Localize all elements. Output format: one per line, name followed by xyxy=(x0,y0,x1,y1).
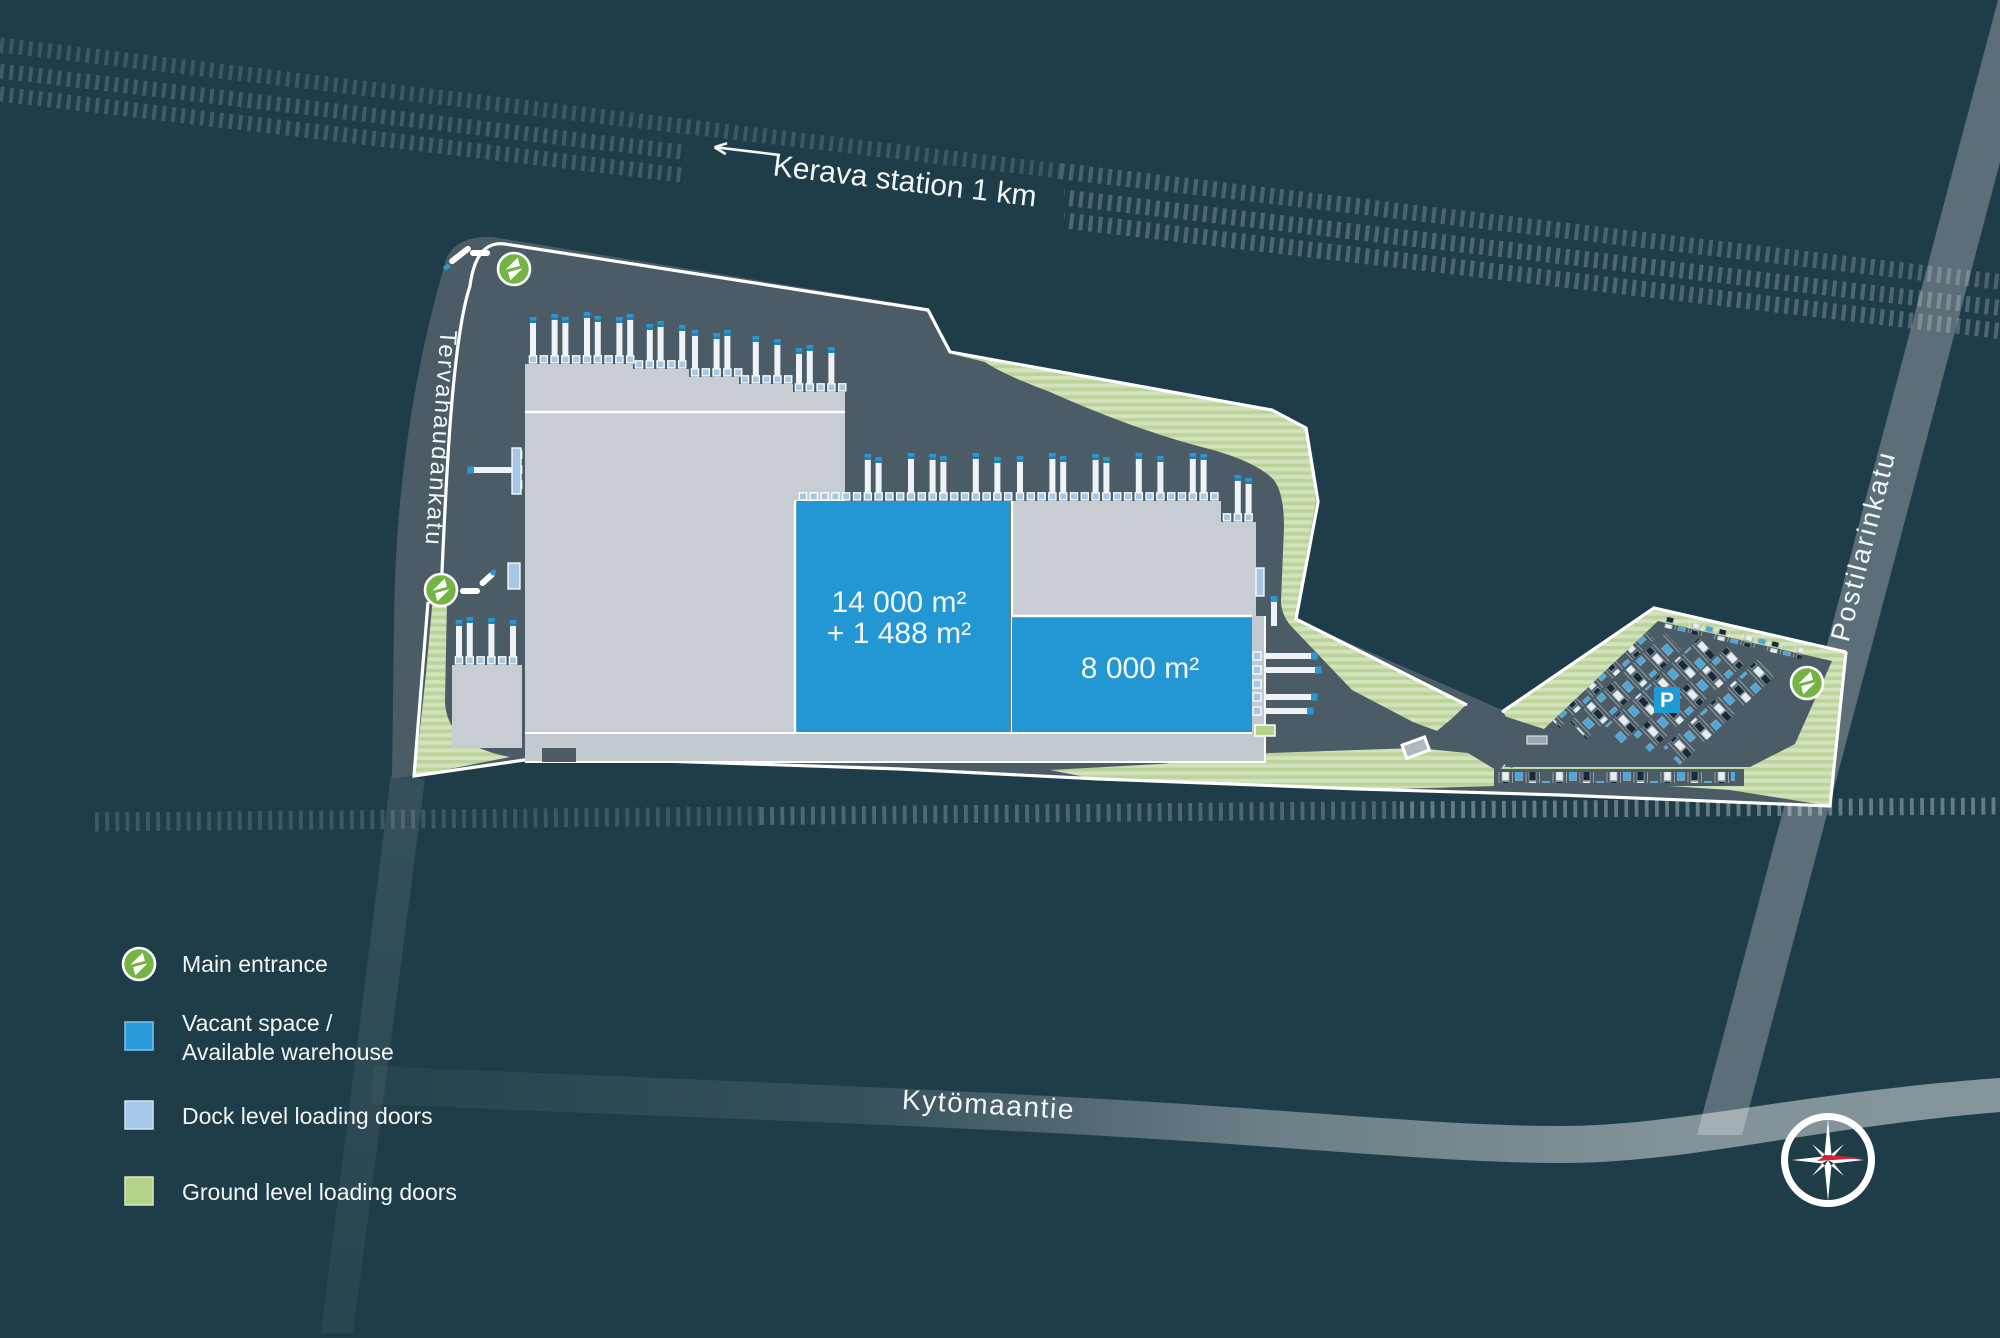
svg-text:Main entrance: Main entrance xyxy=(182,951,328,977)
svg-text:P: P xyxy=(1660,689,1674,712)
svg-text:+ 1 488 m²: + 1 488 m² xyxy=(827,617,971,650)
svg-text:14 000 m²: 14 000 m² xyxy=(831,586,966,619)
svg-text:8 000 m²: 8 000 m² xyxy=(1081,652,1199,685)
svg-text:Vacant space /: Vacant space / xyxy=(182,1010,333,1036)
svg-text:Ground level loading doors: Ground level loading doors xyxy=(182,1179,457,1205)
svg-text:Dock level loading doors: Dock level loading doors xyxy=(182,1103,433,1129)
svg-text:Available warehouse: Available warehouse xyxy=(182,1039,394,1065)
